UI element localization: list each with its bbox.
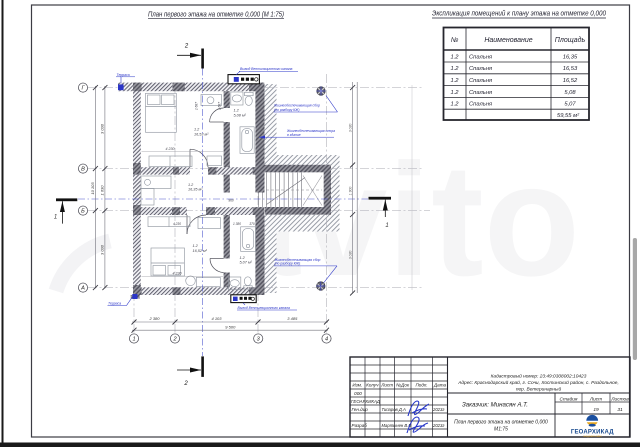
svg-text:Спальня: Спальня — [469, 66, 492, 72]
svg-text:Экспликация помещений к плану: Экспликация помещений к плану этажа на о… — [432, 10, 606, 18]
svg-text:в здание: в здание — [287, 133, 301, 137]
svg-text:М1:75: М1:75 — [494, 426, 508, 432]
svg-text:Разраб: Разраб — [352, 423, 368, 428]
svg-text:№: № — [451, 37, 459, 44]
svg-text:59,55 м²: 59,55 м² — [557, 113, 580, 119]
svg-text:Листов: Листов — [610, 396, 629, 402]
svg-text:4 103: 4 103 — [211, 316, 222, 321]
svg-text:Типаров Д.А: Типаров Д.А — [382, 407, 406, 412]
svg-text:Мартынен В.В: Мартынен В.В — [382, 423, 412, 428]
svg-text:3 030: 3 030 — [348, 251, 352, 260]
svg-text:2023г: 2023г — [432, 407, 444, 412]
svg-text:16,53: 16,53 — [563, 66, 578, 72]
svg-text:1.2: 1.2 — [193, 244, 199, 248]
svg-text:1.2: 1.2 — [240, 256, 246, 260]
svg-text:(по разбору КЖ): (по разбору КЖ) — [274, 108, 300, 112]
svg-text:5,08: 5,08 — [564, 90, 576, 96]
svg-text:5,08 м²: 5,08 м² — [234, 113, 247, 117]
svg-text:ГЕОАРХИКАД: ГЕОАРХИКАД — [351, 399, 380, 404]
svg-text:16,52 м²: 16,52 м² — [193, 249, 208, 253]
svg-text:2: 2 — [183, 381, 188, 387]
svg-text:9 500: 9 500 — [225, 324, 236, 329]
svg-text:Дата: Дата — [433, 383, 447, 388]
svg-text:1: 1 — [132, 337, 135, 343]
svg-text:Подп.: Подп. — [415, 383, 427, 388]
svg-text:5,07 м²: 5,07 м² — [240, 261, 253, 265]
svg-text:Кадастровый номер: 23:49:03080: Кадастровый номер: 23:49:0308002:10423 — [491, 373, 587, 380]
svg-text:Терраса: Терраса — [108, 302, 121, 306]
svg-text:1: 1 — [385, 223, 388, 229]
svg-text:1.2: 1.2 — [450, 78, 459, 84]
svg-text:1.2: 1.2 — [234, 109, 240, 113]
svg-text:370: 370 — [249, 222, 255, 226]
svg-text:960: 960 — [228, 198, 234, 202]
svg-text:Площадь: Площадь — [555, 36, 586, 44]
svg-text:4 230: 4 230 — [173, 272, 182, 276]
svg-text:1 380: 1 380 — [233, 222, 241, 226]
svg-text:Спальня: Спальня — [469, 78, 492, 84]
svg-text:4 230: 4 230 — [173, 222, 181, 226]
svg-text:4 230: 4 230 — [166, 147, 175, 151]
svg-text:1 900: 1 900 — [348, 187, 352, 196]
svg-text:Наименование: Наименование — [484, 37, 532, 44]
svg-text:Лист: Лист — [589, 396, 602, 402]
svg-text:10 103: 10 103 — [90, 182, 95, 195]
svg-text:1 687: 1 687 — [217, 102, 221, 110]
svg-text:4: 4 — [325, 337, 328, 343]
svg-text:пер. Ветеринарный: пер. Ветеринарный — [516, 385, 562, 392]
svg-text:2023г: 2023г — [432, 423, 444, 428]
svg-text:Адрес: Краснодарский край, г.: Адрес: Краснодарский край, г. Сочи, Хост… — [457, 379, 619, 386]
svg-text:3 030: 3 030 — [100, 123, 105, 134]
svg-text:16,35: 16,35 — [563, 54, 578, 60]
svg-text:Заказчик: Минасян А.Т.: Заказчик: Минасян А.Т. — [462, 402, 528, 409]
svg-text:Б: Б — [81, 209, 85, 215]
svg-text:геодезия смик: геодезия смик — [583, 434, 602, 438]
svg-text:В: В — [81, 167, 85, 173]
svg-text:1.2: 1.2 — [450, 54, 459, 60]
svg-text:19: 19 — [593, 407, 599, 413]
svg-text:16,52: 16,52 — [563, 78, 578, 84]
svg-text:План первого этажа на отметке: План первого этажа на отметке 0,000 (М 1… — [148, 12, 284, 19]
svg-text:Лист: Лист — [380, 383, 393, 388]
svg-text:3 030: 3 030 — [348, 124, 352, 133]
svg-text:Колуч: Колуч — [366, 383, 379, 388]
svg-text:1 687: 1 687 — [195, 102, 199, 110]
svg-text:№Док: №Док — [396, 383, 410, 388]
svg-text:Вывод Вентиляционного канала: Вывод Вентиляционного канала — [240, 67, 293, 71]
svg-text:Спальня: Спальня — [469, 90, 492, 96]
svg-text:1.2: 1.2 — [188, 183, 194, 187]
svg-text:Терраса: Терраса — [117, 73, 130, 77]
svg-text:План первого этажа на отметке: План первого этажа на отметке 0,000 — [454, 419, 548, 425]
svg-text:1 630: 1 630 — [100, 185, 105, 196]
svg-text:3 030: 3 030 — [100, 244, 105, 255]
svg-text:1.2: 1.2 — [194, 128, 200, 132]
svg-text:Вывод Вентиляционного канала: Вывод Вентиляционного канала — [238, 306, 291, 310]
svg-text:Стадия: Стадия — [560, 396, 578, 402]
svg-text:3 485: 3 485 — [287, 316, 298, 321]
svg-text:5,07: 5,07 — [564, 102, 576, 108]
svg-text:31: 31 — [617, 407, 623, 413]
svg-text:Ген.дир: Ген.дир — [352, 407, 369, 412]
svg-text:А: А — [80, 286, 85, 292]
svg-text:Изм.: Изм. — [352, 383, 362, 388]
svg-text:Спальня: Спальня — [469, 54, 492, 60]
svg-text:1: 1 — [54, 215, 57, 221]
svg-text:1.2: 1.2 — [450, 90, 459, 96]
svg-text:000: 000 — [354, 391, 362, 396]
svg-text:2 380: 2 380 — [148, 316, 160, 321]
svg-text:Спальня: Спальня — [469, 102, 492, 108]
svg-text:1.2: 1.2 — [450, 102, 459, 108]
svg-text:1.2: 1.2 — [450, 66, 459, 72]
svg-text:2: 2 — [184, 44, 189, 50]
svg-text:16,35 м²: 16,35 м² — [188, 188, 203, 192]
svg-text:16,53 м²: 16,53 м² — [194, 132, 209, 136]
svg-text:(по разбору КЖ): (по разбору КЖ) — [275, 262, 301, 266]
